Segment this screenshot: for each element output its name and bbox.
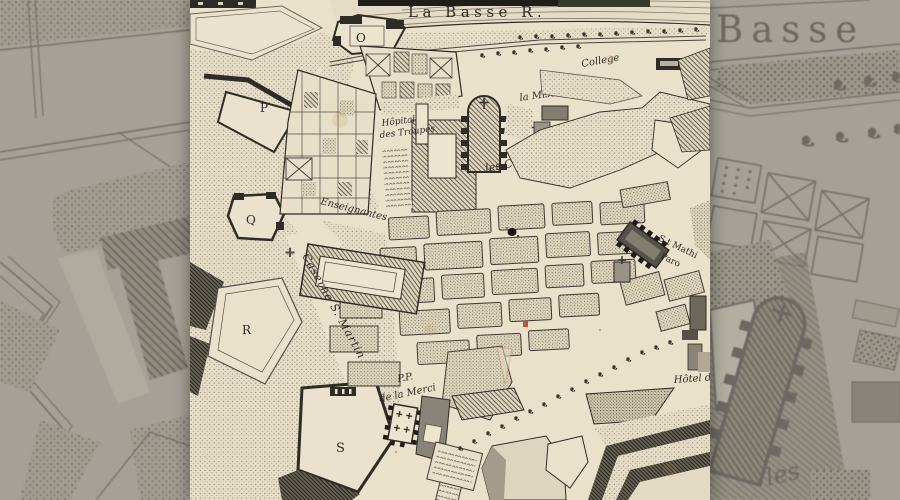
city-map-image: La Basse R. [190, 0, 710, 500]
label-river: La Basse R. [408, 3, 546, 21]
backdrop-left [0, 0, 190, 500]
red-mark [523, 321, 528, 327]
backdrop-label-basse: Basse [716, 8, 865, 51]
backdrop-right-art: Basse [710, 0, 900, 500]
label-bastion-o: O [356, 31, 366, 45]
map-viewer: Basse [0, 0, 900, 500]
ink-blot [508, 228, 517, 236]
label-bastion-q: Q [246, 213, 256, 227]
label-bastion-p: P [260, 101, 268, 115]
label-bastion-s: S [336, 441, 345, 456]
city-map-art: La Basse R. [190, 0, 710, 500]
label-bastion-r: R [242, 323, 252, 337]
backdrop-left-art [0, 0, 190, 500]
backdrop-right: Basse [710, 0, 900, 500]
